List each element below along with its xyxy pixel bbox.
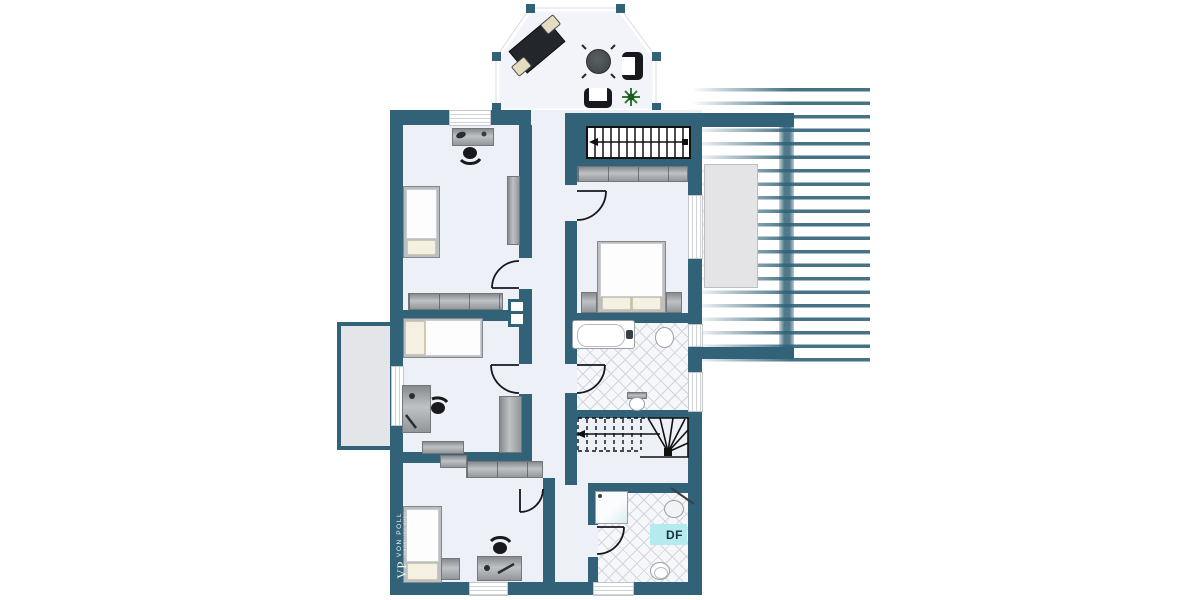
sideboard: [422, 441, 464, 454]
armchair: [584, 88, 612, 108]
wardrobe: [577, 166, 688, 182]
window-bottom-bath: [594, 583, 633, 595]
roof-dormer: [704, 164, 758, 288]
roof-window-label: DF: [666, 528, 683, 542]
bed-pillow: [602, 297, 631, 310]
armchair: [622, 52, 643, 80]
chimney: [508, 299, 526, 327]
terrace-wall-bottom: [690, 347, 794, 359]
bathtub-faucet: [626, 330, 633, 339]
wardrobe: [507, 176, 520, 245]
wall-exterior-bottom: [390, 582, 702, 595]
balcony-left: [337, 322, 395, 450]
wall-bath-lower-left-b: [588, 557, 598, 582]
wardrobe: [440, 455, 467, 468]
wall-stair-block: [577, 127, 587, 158]
bed-duvet: [425, 320, 481, 356]
roof-ridge-band: [779, 127, 794, 353]
window-bottom-room3: [470, 583, 507, 595]
nightstand: [581, 292, 597, 313]
wall-room3-right: [543, 478, 555, 582]
brand-monogram: VP: [394, 561, 410, 579]
window-bath-right-a: [689, 325, 702, 346]
desk: [477, 556, 522, 581]
bed-duvet: [600, 243, 663, 297]
desk: [452, 128, 494, 146]
sideboard: [408, 293, 503, 310]
bed-pillow: [405, 321, 425, 355]
bed-pillow: [407, 240, 436, 255]
shower-drain: [598, 494, 602, 498]
bed-duvet: [406, 509, 439, 562]
wall-exterior-right: [688, 113, 702, 595]
wall-hallway-right-a: [565, 127, 577, 185]
bed-pillow: [632, 297, 661, 310]
bed-pillow: [407, 563, 438, 580]
round-table: [586, 49, 611, 74]
wall-hallway-left-a: [519, 125, 532, 258]
bathtub-inner: [577, 324, 625, 347]
toilet: [629, 397, 645, 411]
wall-bath-stairs: [577, 410, 688, 418]
sink: [655, 327, 674, 348]
window-bath-right-b: [689, 373, 702, 411]
window-master-right: [689, 196, 702, 258]
shelf: [499, 396, 522, 453]
desk: [402, 385, 431, 433]
toilet-inner: [654, 567, 668, 579]
bed-duvet: [406, 189, 437, 239]
nightstand: [441, 558, 460, 580]
brand-watermark: VP VON POLL IMMOBILIEN GMBH: [394, 495, 410, 595]
wall-exterior-top-right: [565, 113, 794, 127]
brand-subtitle: IMMOBILIEN GMBH: [404, 511, 407, 557]
nightstand: [666, 292, 682, 313]
floor-plan: DF: [0, 0, 1200, 600]
sink: [664, 500, 684, 518]
window-top-room1: [450, 111, 490, 125]
wardrobe: [466, 461, 543, 478]
wall-hallway-right-c: [565, 393, 577, 485]
